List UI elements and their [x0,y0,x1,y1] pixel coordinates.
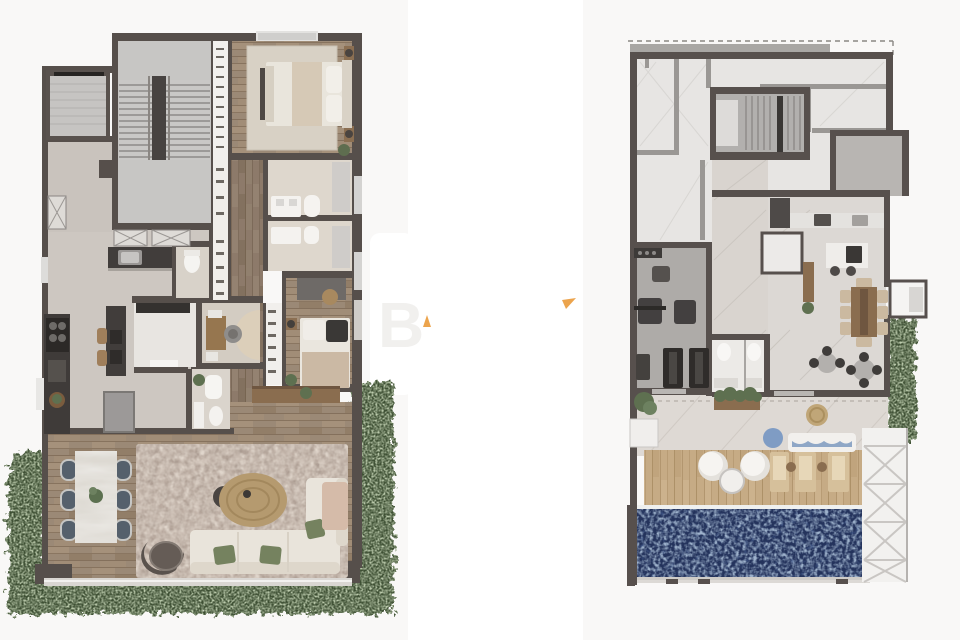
svg-text:B: B [378,289,424,361]
